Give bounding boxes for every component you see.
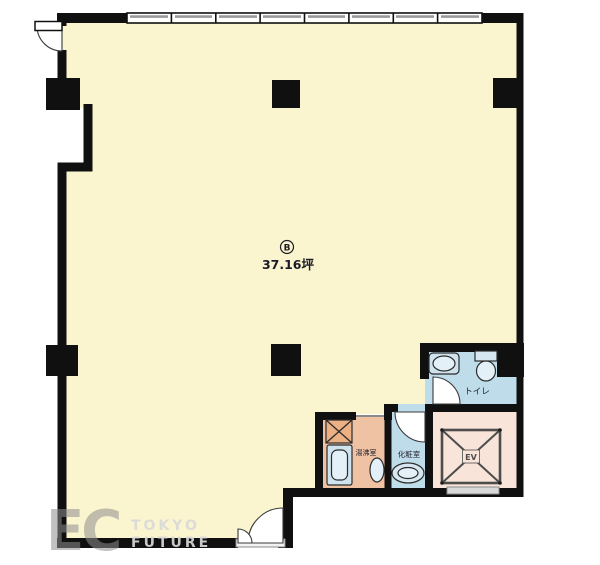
floorplan-drawing: B 37.16坪 トイレ 化粧室 湯沸室 EV — [0, 0, 600, 565]
elevator-corner-dot — [498, 481, 502, 485]
unit-label: B — [284, 244, 291, 254]
kitchenette-heater — [370, 458, 384, 482]
area-label: 37.16坪 — [262, 257, 315, 272]
powder-label: 化粧室 — [398, 449, 421, 459]
powder-toilet-inner — [398, 468, 418, 479]
pillar-right-top — [493, 78, 518, 108]
floorplan-image: B 37.16坪 トイレ 化粧室 湯沸室 EV EC TOKYO FUTURE — [0, 0, 600, 565]
pillar-center-top — [272, 80, 300, 108]
entry-door-leaf — [35, 22, 62, 31]
kitchenette-sink-basin — [332, 450, 348, 480]
elevator-corner-dot — [498, 428, 502, 432]
pillar-toilet-corner — [497, 343, 524, 377]
powder-fixtures — [392, 463, 424, 483]
toilet-bowl — [477, 361, 496, 381]
kitchenette-label: 湯沸室 — [356, 448, 377, 457]
pillar-left-top — [46, 78, 80, 110]
window-band — [127, 13, 482, 23]
elevator-corner-dot — [440, 481, 444, 485]
elevator-doors — [447, 487, 499, 494]
elevator-corner-dot — [440, 428, 444, 432]
toilet-sink-basin — [433, 356, 455, 371]
toilet-label: トイレ — [464, 387, 490, 397]
pillar-left-middle — [46, 345, 78, 376]
toilet-tank — [475, 351, 497, 361]
elevator-label: EV — [465, 453, 477, 462]
pillar-center-middle — [271, 344, 301, 376]
